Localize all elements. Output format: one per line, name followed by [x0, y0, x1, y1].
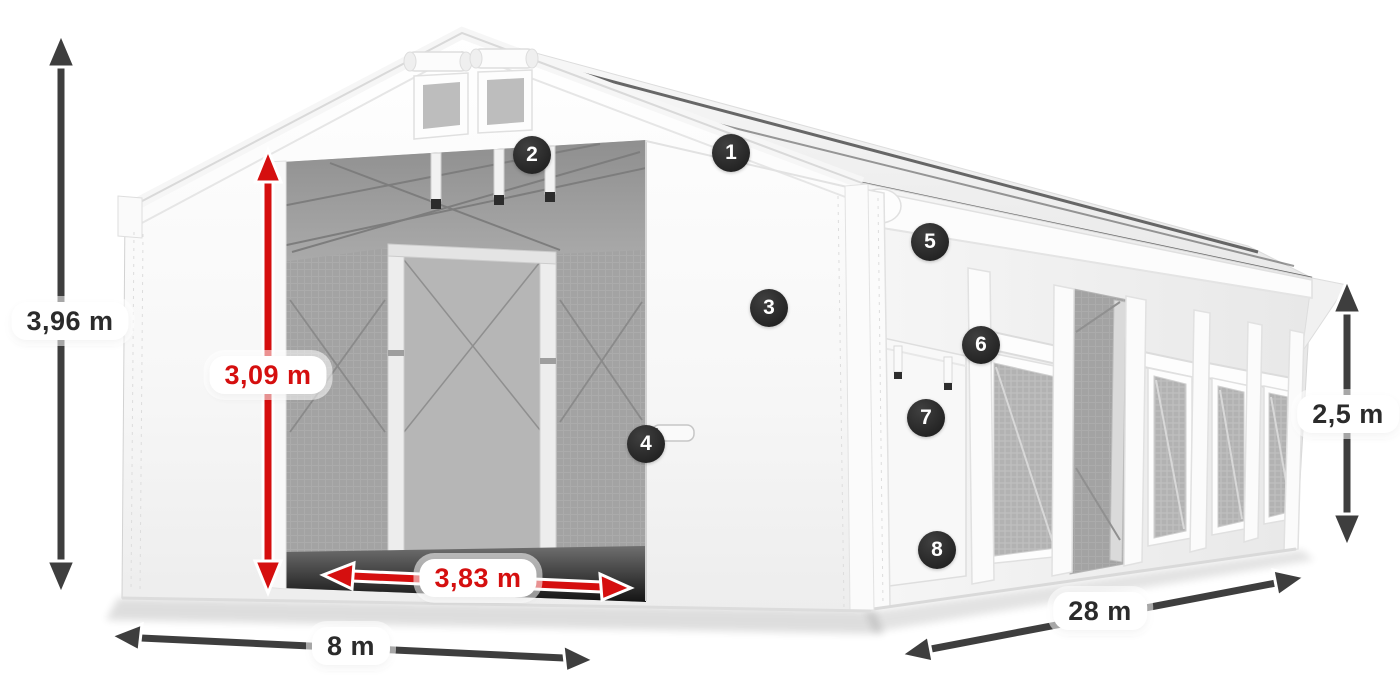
- label-entrance-width: 3,83 m: [419, 559, 536, 597]
- feature-marker-5[interactable]: 5: [911, 223, 949, 261]
- gable-vent-right: [470, 49, 538, 133]
- feature-marker-3[interactable]: 3: [750, 289, 788, 327]
- interior-partition-left: [282, 248, 388, 586]
- feature-marker-7[interactable]: 7: [907, 399, 945, 437]
- label-total-height: 3,96 m: [11, 302, 128, 340]
- label-entrance-height: 3,09 m: [209, 356, 326, 394]
- flap-strap: [944, 357, 952, 383]
- open-side-section: [1070, 289, 1128, 574]
- feature-marker-8[interactable]: 8: [918, 531, 956, 569]
- left-eave-overhang: [118, 196, 142, 238]
- feature-marker-1[interactable]: 1: [712, 134, 750, 172]
- tent-illustration: [0, 0, 1400, 700]
- feature-marker-6[interactable]: 6: [962, 326, 1000, 364]
- label-side-height: 2,5 m: [1297, 395, 1399, 433]
- middle-doorway: [404, 256, 540, 580]
- entrance-opening: [282, 140, 646, 602]
- side-window-2: [1144, 352, 1196, 546]
- label-length: 28 m: [1053, 592, 1147, 630]
- flap-strap: [894, 346, 902, 372]
- gable-vent-left: [404, 52, 472, 139]
- tent-dimension-diagram: 3,96 m 3,09 m 3,83 m 8 m 28 m 2,5 m 1 2 …: [0, 0, 1400, 700]
- feature-marker-2[interactable]: 2: [513, 136, 551, 174]
- feature-marker-4[interactable]: 4: [627, 425, 665, 463]
- doorway-pole-right: [540, 252, 556, 584]
- doorway-pole-left: [388, 244, 404, 580]
- label-width: 8 m: [312, 627, 390, 665]
